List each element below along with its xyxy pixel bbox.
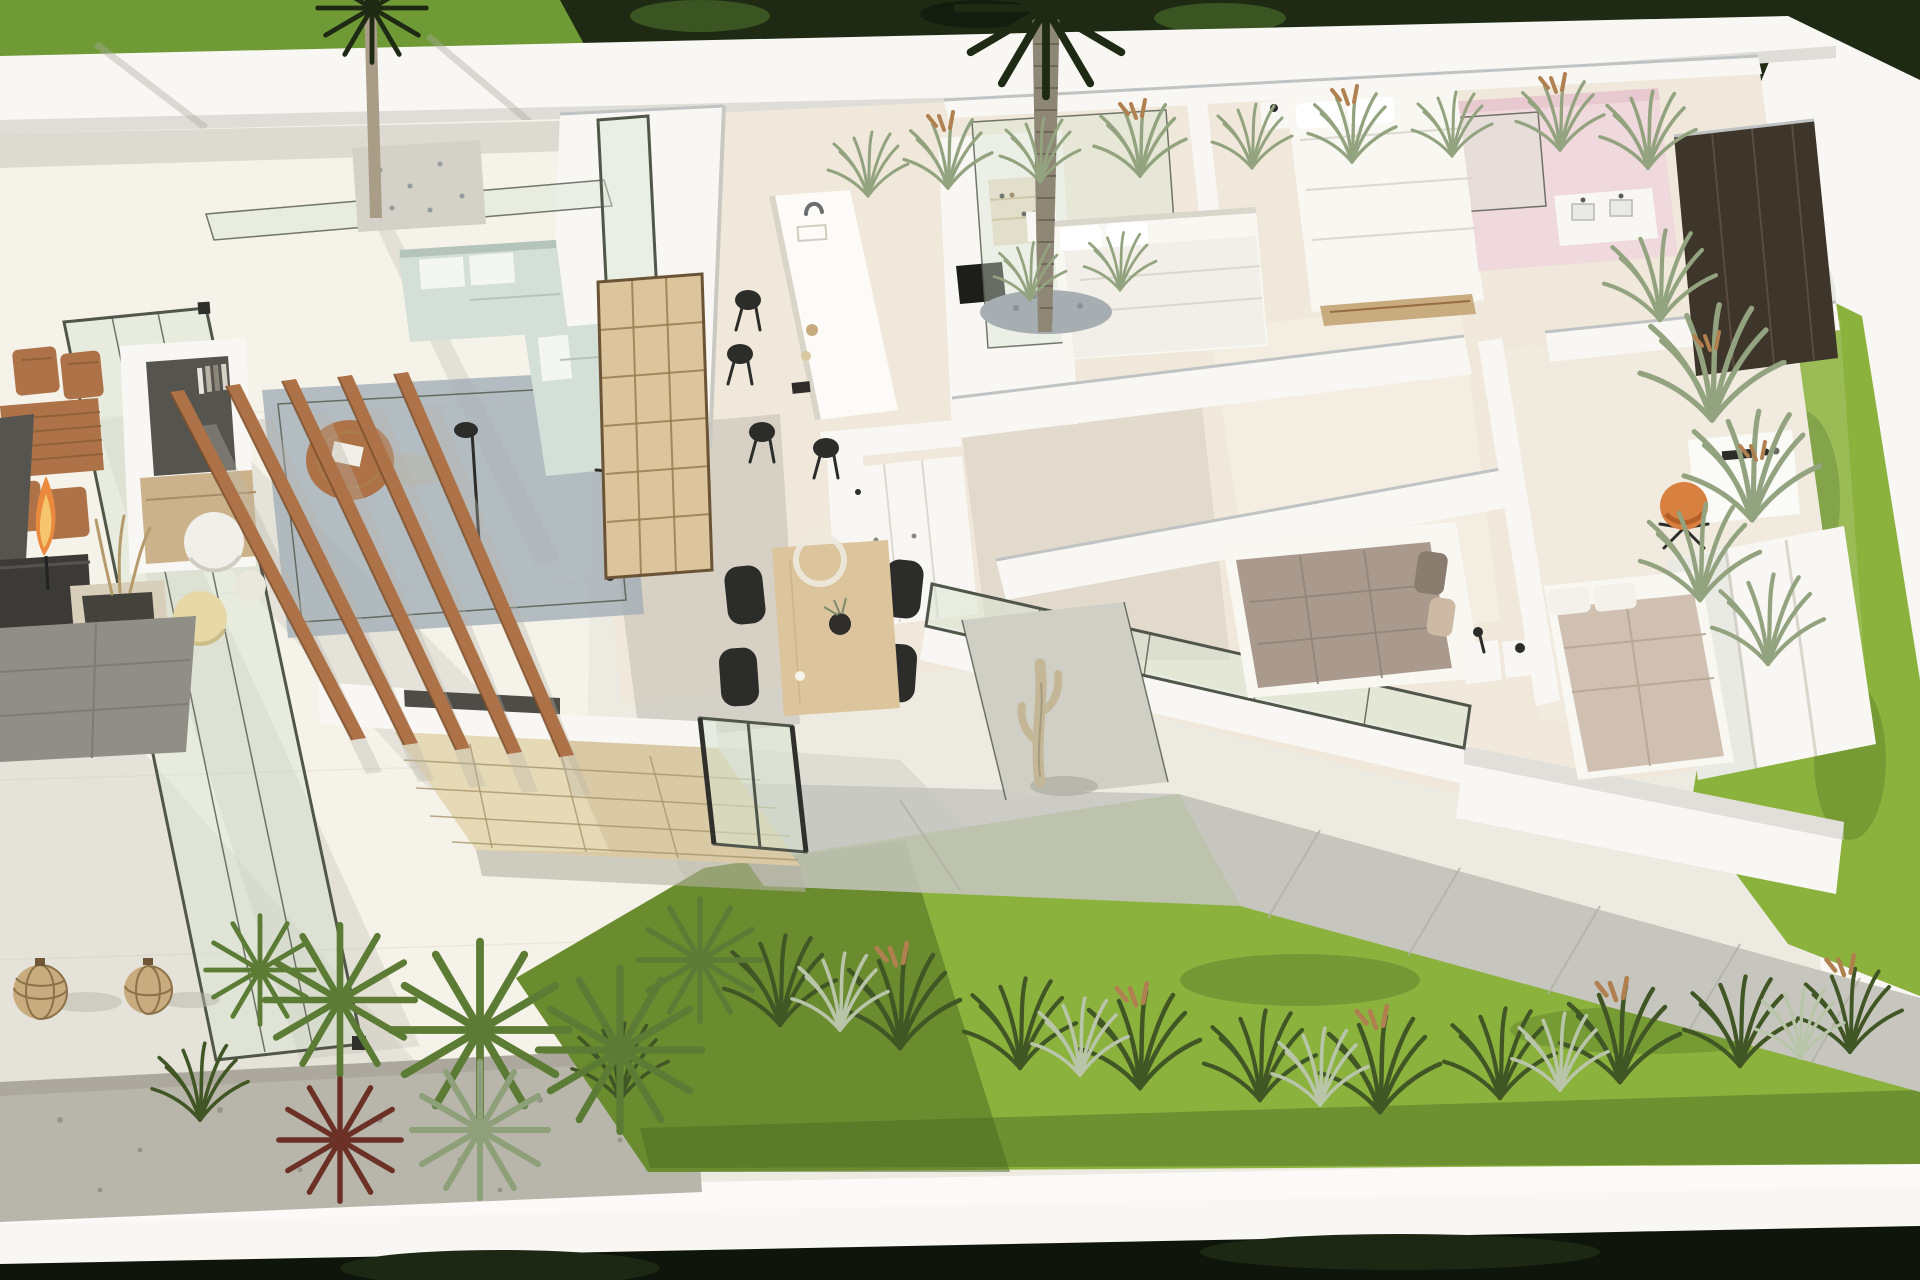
bookshelf — [598, 274, 712, 578]
entry-glass-door — [700, 718, 806, 852]
vanity-unit — [1554, 188, 1658, 246]
dining-table — [772, 536, 900, 716]
outdoor-mat — [0, 616, 196, 762]
scene-canvas — [0, 0, 1920, 1280]
night-foliage-2 — [1200, 1234, 1600, 1270]
floorplan-render — [0, 0, 1920, 1280]
bedroom-c — [1222, 522, 1502, 698]
bedroom-a — [1026, 210, 1268, 360]
